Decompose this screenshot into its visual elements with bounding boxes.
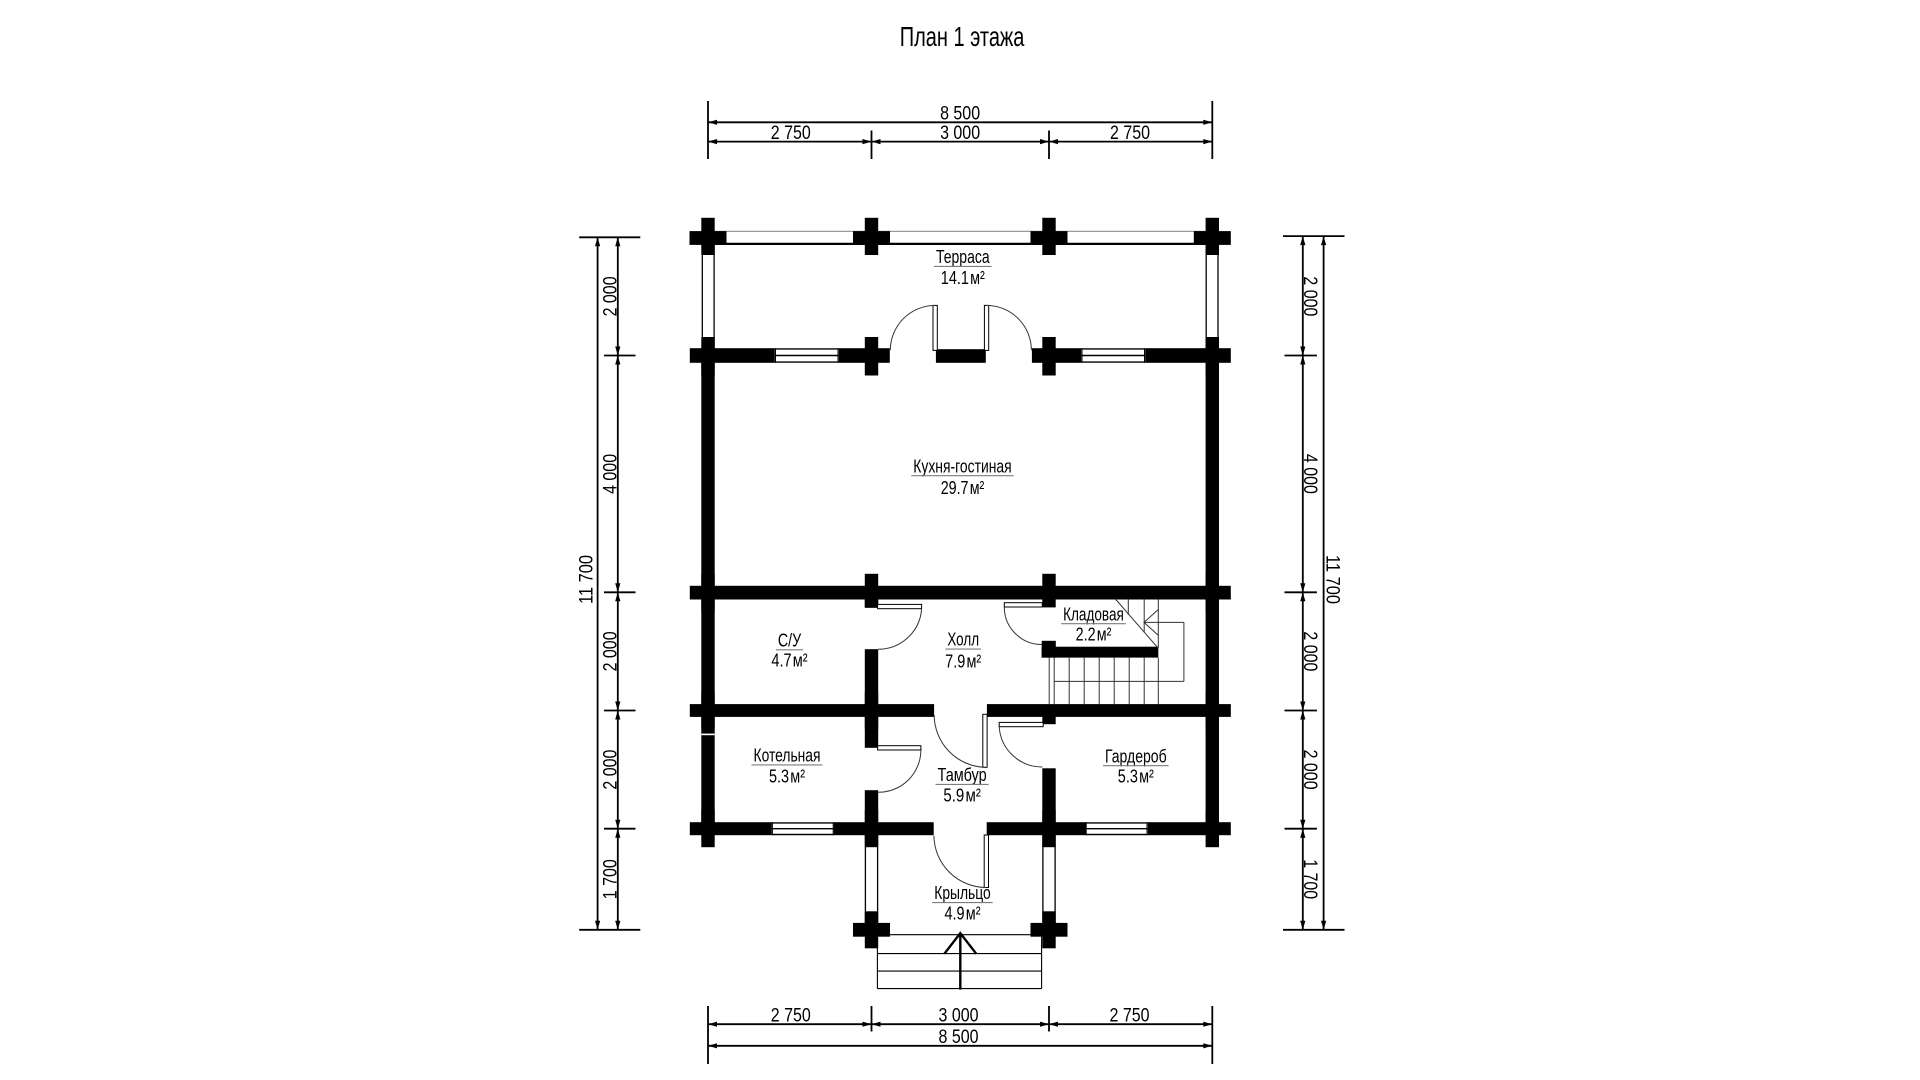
svg-text:Тамбур: Тамбур bbox=[938, 764, 987, 785]
svg-text:2 000: 2 000 bbox=[1299, 631, 1321, 671]
svg-text:2 000: 2 000 bbox=[1299, 276, 1321, 316]
svg-text:Кухня-гостиная: Кухня-гостиная bbox=[913, 455, 1011, 476]
svg-text:2 000: 2 000 bbox=[599, 631, 621, 671]
svg-text:2 750: 2 750 bbox=[1110, 1005, 1150, 1027]
svg-text:2 000: 2 000 bbox=[599, 750, 621, 790]
svg-text:5.3 м²: 5.3 м² bbox=[1118, 765, 1154, 786]
svg-text:4 000: 4 000 bbox=[599, 454, 621, 494]
svg-text:2.2 м²: 2.2 м² bbox=[1076, 624, 1112, 645]
svg-text:2 750: 2 750 bbox=[1110, 122, 1150, 144]
svg-text:5.3 м²: 5.3 м² bbox=[769, 766, 805, 787]
svg-text:4 000: 4 000 bbox=[1299, 454, 1321, 494]
svg-text:11 700: 11 700 bbox=[1321, 555, 1343, 604]
svg-text:4.7 м²: 4.7 м² bbox=[771, 650, 807, 671]
svg-text:Гардероб: Гардероб bbox=[1105, 745, 1167, 766]
svg-text:14.1 м²: 14.1 м² bbox=[941, 267, 985, 288]
svg-text:4.9 м²: 4.9 м² bbox=[945, 902, 981, 923]
svg-text:29.7 м²: 29.7 м² bbox=[941, 477, 985, 498]
svg-text:3 000: 3 000 bbox=[940, 122, 980, 144]
svg-text:2 750: 2 750 bbox=[771, 122, 811, 144]
svg-text:Холл: Холл bbox=[947, 629, 979, 650]
svg-text:Терраса: Терраса bbox=[936, 246, 990, 267]
svg-text:7.9 м²: 7.9 м² bbox=[945, 650, 981, 671]
svg-text:2 000: 2 000 bbox=[1299, 750, 1321, 790]
svg-text:5.9 м²: 5.9 м² bbox=[943, 785, 981, 806]
svg-text:3 000: 3 000 bbox=[939, 1005, 979, 1027]
svg-text:Кладовая: Кладовая bbox=[1063, 603, 1124, 624]
svg-text:11 700: 11 700 bbox=[575, 555, 597, 604]
svg-text:Котельная: Котельная bbox=[754, 745, 821, 766]
svg-text:1 700: 1 700 bbox=[599, 859, 621, 899]
svg-text:План 1 этажа: План 1 этажа bbox=[900, 21, 1025, 52]
svg-text:2 000: 2 000 bbox=[599, 276, 621, 316]
svg-text:8 500: 8 500 bbox=[939, 1026, 979, 1048]
svg-text:2 750: 2 750 bbox=[771, 1005, 811, 1027]
svg-text:1 700: 1 700 bbox=[1299, 859, 1321, 899]
svg-text:Крыльцо: Крыльцо bbox=[934, 882, 991, 903]
svg-text:С/У: С/У bbox=[778, 629, 802, 650]
